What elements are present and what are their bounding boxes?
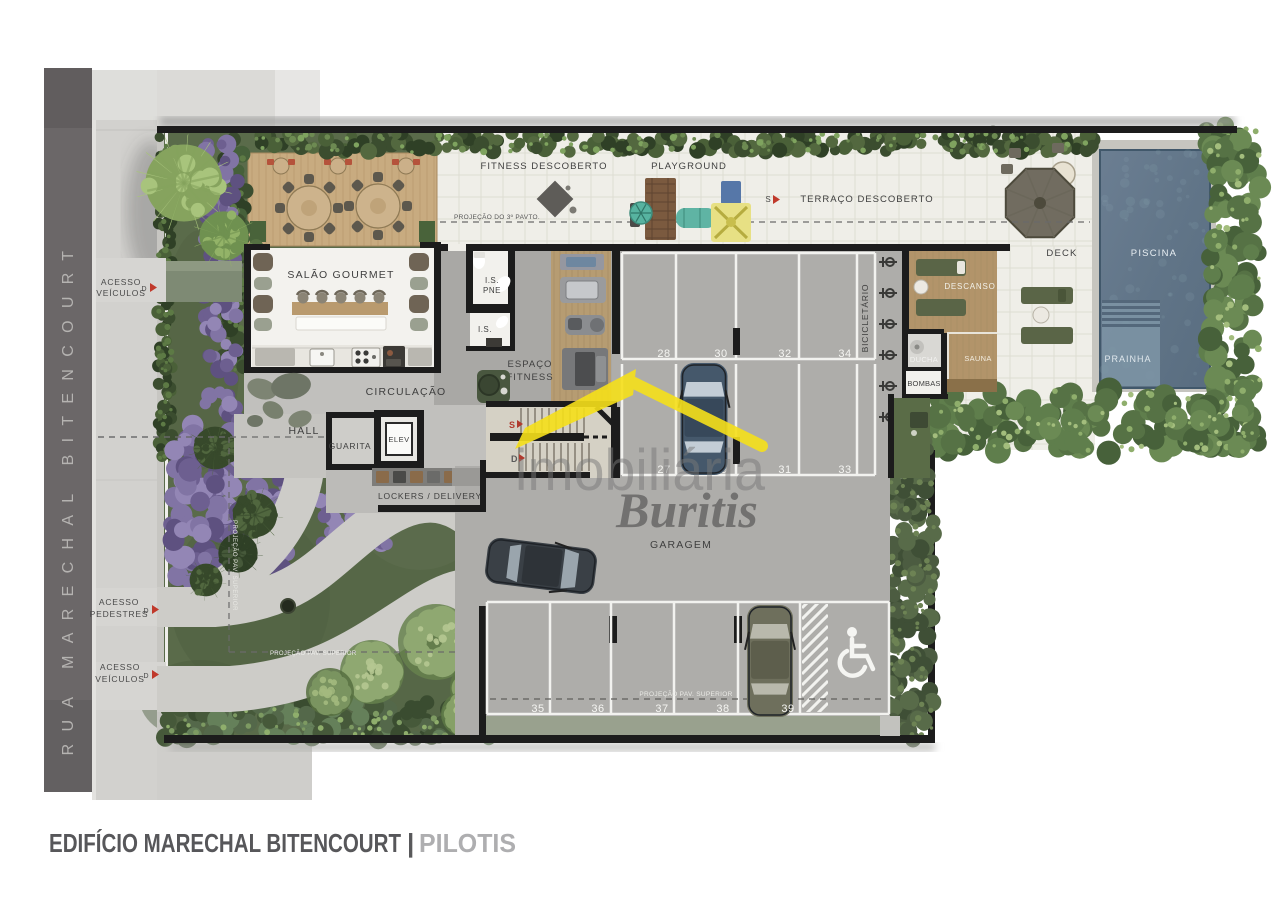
svg-text:D: D [143,608,148,615]
svg-text:D: D [143,673,148,680]
svg-text:GUARITA: GUARITA [329,441,372,451]
svg-text:ELEV: ELEV [388,435,409,444]
svg-text:Buritis: Buritis [615,482,758,538]
svg-text:BICICLETÁRIO: BICICLETÁRIO [860,284,870,353]
svg-text:S: S [509,420,515,430]
svg-text:PRAINHA: PRAINHA [1104,354,1151,364]
svg-text:ACESSO: ACESSO [99,597,139,607]
svg-text:PROJEÇÃO PAV. SUPERIOR: PROJEÇÃO PAV. SUPERIOR [270,650,357,657]
svg-text:35: 35 [531,703,544,715]
svg-text:PNE: PNE [483,286,501,295]
svg-text:32: 32 [778,348,791,360]
svg-text:SAUNA: SAUNA [964,354,991,363]
svg-text:39: 39 [781,703,794,715]
svg-text:VEÍCULOS: VEÍCULOS [96,288,145,298]
svg-text:|: | [407,828,414,858]
svg-text:PROJEÇÃO PAV. SUPERIOR: PROJEÇÃO PAV. SUPERIOR [231,520,238,611]
svg-text:BOMBAS: BOMBAS [907,379,940,388]
svg-text:30: 30 [714,348,727,360]
svg-text:DUCHA: DUCHA [910,355,938,364]
svg-text:TERRAÇO DESCOBERTO: TERRAÇO DESCOBERTO [800,194,933,205]
svg-text:I.S.: I.S. [485,276,499,285]
svg-text:LOCKERS / DELIVERY: LOCKERS / DELIVERY [378,491,482,501]
svg-text:DECK: DECK [1046,248,1077,259]
svg-text:PEDESTRES: PEDESTRES [90,609,149,619]
svg-text:I.S.: I.S. [478,325,492,334]
svg-text:CIRCULAÇÃO: CIRCULAÇÃO [366,385,447,398]
svg-text:D: D [141,286,146,293]
svg-text:33: 33 [838,464,851,476]
svg-text:DESCANSO: DESCANSO [944,282,995,291]
svg-text:ACESSO: ACESSO [100,662,140,672]
svg-text:34: 34 [838,348,851,360]
svg-text:36: 36 [591,703,604,715]
svg-text:SALÃO GOURMET: SALÃO GOURMET [287,268,394,281]
svg-text:37: 37 [655,703,668,715]
svg-text:GARAGEM: GARAGEM [650,539,712,551]
svg-text:38: 38 [716,703,729,715]
svg-text:PILOTIS: PILOTIS [419,828,516,858]
svg-text:VEÍCULOS: VEÍCULOS [95,674,144,684]
svg-text:PISCINA: PISCINA [1131,248,1177,259]
svg-text:PLAYGROUND: PLAYGROUND [651,161,727,172]
svg-text:FITNESS: FITNESS [506,372,553,383]
svg-text:31: 31 [778,464,791,476]
svg-text:PROJEÇÃO PAV. SUPERIOR: PROJEÇÃO PAV. SUPERIOR [639,689,732,698]
svg-text:ESPAÇO: ESPAÇO [508,359,553,370]
svg-text:S: S [765,195,770,204]
svg-text:PROJEÇÃO DO 3º PAVTO.: PROJEÇÃO DO 3º PAVTO. [454,212,540,221]
svg-text:EDIFÍCIO MARECHAL BITENCOURT: EDIFÍCIO MARECHAL BITENCOURT [49,828,401,858]
svg-text:ACESSO: ACESSO [101,277,141,287]
svg-text:RUA MARECHAL BITENCOURT: RUA MARECHAL BITENCOURT [60,239,77,756]
svg-text:FITNESS DESCOBERTO: FITNESS DESCOBERTO [481,161,608,172]
svg-text:28: 28 [657,348,670,360]
